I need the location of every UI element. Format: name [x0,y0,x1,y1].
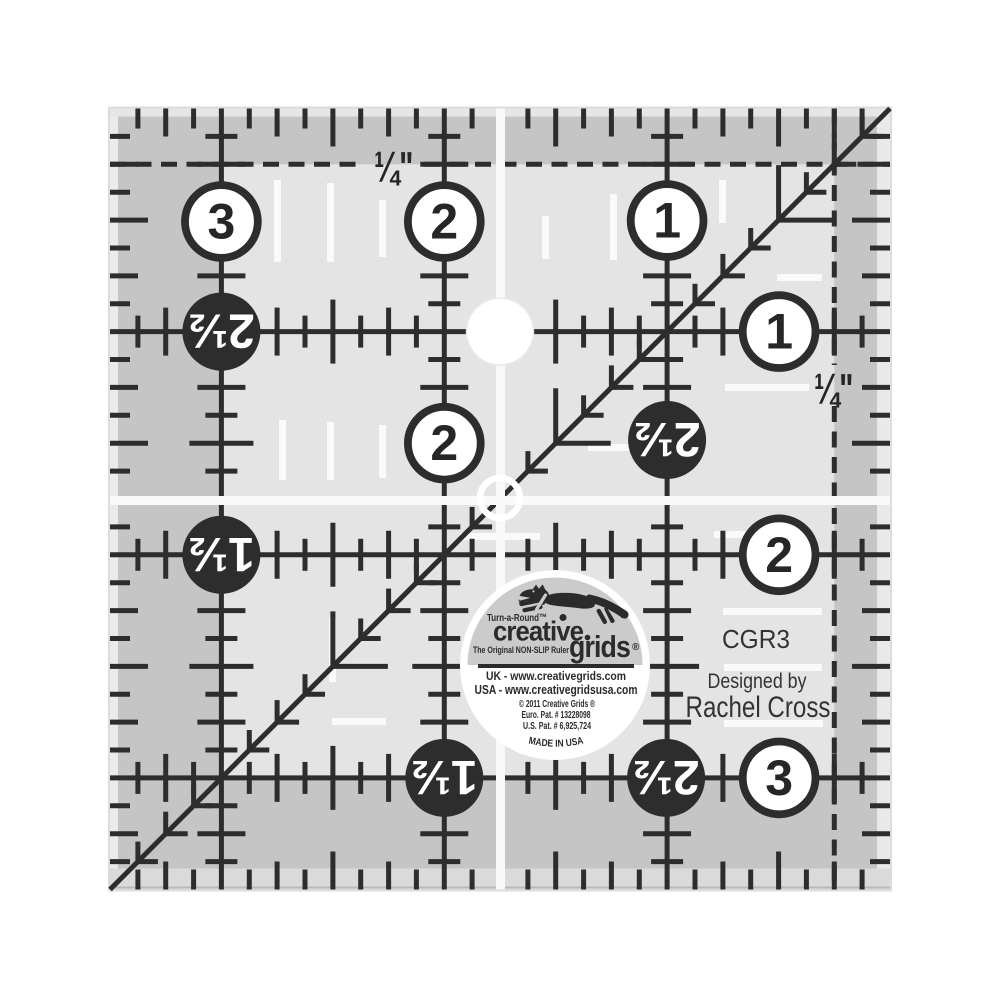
svg-text:2½: 2½ [634,412,701,465]
svg-text:UK - www.creativegrids.com: UK - www.creativegrids.com [486,669,626,683]
svg-text:1½: 1½ [188,527,255,580]
svg-text:U.S. Pat. # 6,925,724: U.S. Pat. # 6,925,724 [523,721,591,732]
svg-text:grids: grids [569,629,630,664]
svg-text:© 2011 Creative Grids ®: © 2011 Creative Grids ® [519,699,595,710]
svg-text:®: ® [632,642,640,653]
svg-text:3: 3 [207,194,235,250]
svg-text:Designed by: Designed by [708,669,807,693]
svg-text:1: 1 [765,304,793,360]
svg-text:2: 2 [430,415,458,471]
svg-text:3: 3 [765,750,793,806]
svg-text:The Original NON-SLIP Ruler: The Original NON-SLIP Ruler [473,645,569,656]
svg-text:1: 1 [653,193,681,249]
svg-text:2: 2 [765,527,793,583]
svg-text:2½: 2½ [633,750,700,803]
svg-text:Euro. Pat. # 13228098: Euro. Pat. # 13228098 [522,710,591,721]
svg-text:2: 2 [430,194,458,250]
svg-text:1½: 1½ [411,750,478,803]
svg-text:2½: 2½ [188,304,255,357]
svg-text:¼": ¼" [814,365,854,414]
svg-text:¼": ¼" [374,143,414,192]
svg-text:CGR3: CGR3 [722,626,790,654]
svg-text:USA - www.creativegridsusa.com: USA - www.creativegridsusa.com [475,683,638,697]
svg-text:Rachel Cross: Rachel Cross [686,691,831,724]
